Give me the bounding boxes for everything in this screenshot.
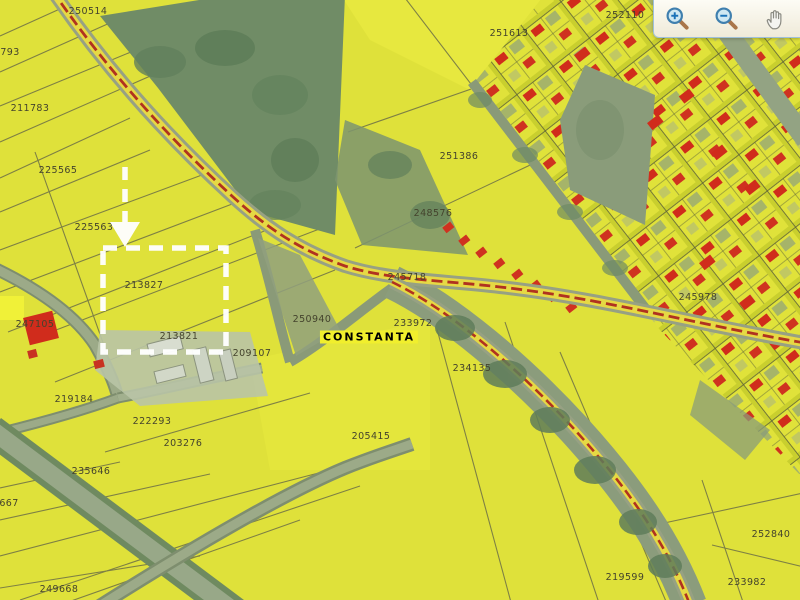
- parcel-label-211783: 211783: [11, 103, 50, 114]
- map-viewer-window: 2505147932117832255652255632516132521102…: [0, 0, 800, 600]
- zoom-out-button[interactable]: [708, 3, 746, 35]
- parcel-label-245718: 245718: [388, 272, 427, 283]
- pan-button[interactable]: [757, 3, 795, 35]
- parcel-label-793: 793: [0, 47, 19, 58]
- parcel-label-219599: 219599: [606, 572, 645, 583]
- parcel-label-234135: 234135: [453, 363, 492, 374]
- parcel-label-203276: 203276: [164, 438, 203, 449]
- parcel-label-225563: 225563: [75, 222, 114, 233]
- parcel-label-249668: 249668: [40, 584, 79, 595]
- parcel-label-251386: 251386: [440, 151, 479, 162]
- zoom-in-icon: [665, 6, 691, 32]
- parcel-label-667: 667: [0, 498, 19, 509]
- hand-icon: [763, 6, 789, 32]
- map-canvas[interactable]: 2505147932117832255652255632516132521102…: [0, 0, 800, 600]
- map-toolbar: [653, 0, 800, 38]
- parcel-label-247105: 247105: [16, 319, 55, 330]
- parcel-label-248576: 248576: [414, 208, 453, 219]
- parcel-label-205415: 205415: [352, 431, 391, 442]
- parcel-label-252840: 252840: [752, 529, 791, 540]
- zoom-in-button[interactable]: [659, 3, 697, 35]
- place-label-constanta: CONSTANTA: [320, 331, 418, 344]
- parcel-label-225565: 225565: [39, 165, 78, 176]
- parcel-label-252110: 252110: [606, 10, 645, 21]
- parcel-label-250514: 250514: [69, 6, 108, 17]
- parcel-label-251613: 251613: [490, 28, 529, 39]
- parcel-label-233982: 233982: [728, 577, 767, 588]
- parcel-label-213827: 213827: [125, 280, 164, 291]
- parcel-label-209107: 209107: [233, 348, 272, 359]
- parcel-label-213821: 213821: [160, 331, 199, 342]
- parcel-label-245978: 245978: [679, 292, 718, 303]
- parcel-label-233972: 233972: [394, 318, 433, 329]
- parcel-label-222293: 222293: [133, 416, 172, 427]
- parcel-label-235646: 235646: [72, 466, 111, 477]
- zoom-out-icon: [714, 6, 740, 32]
- parcel-label-250940: 250940: [293, 314, 332, 325]
- parcel-label-219184: 219184: [55, 394, 94, 405]
